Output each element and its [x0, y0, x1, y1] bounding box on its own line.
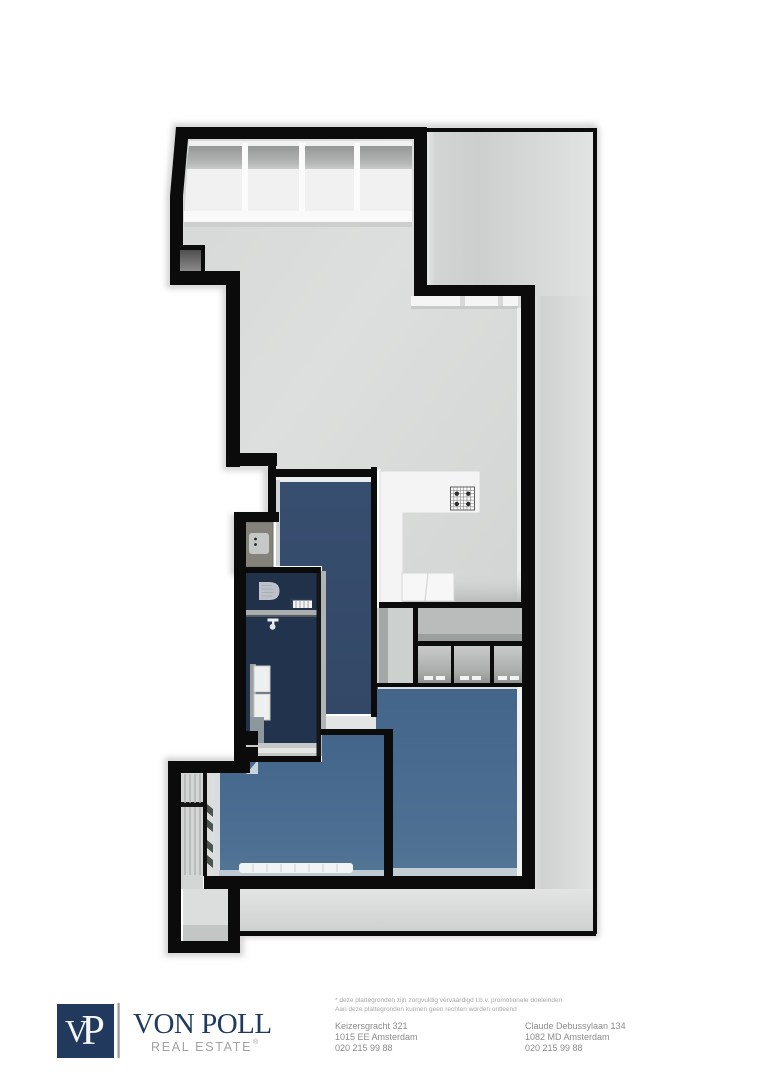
svg-text:Keizersgracht 321: Keizersgracht 321 — [335, 1021, 408, 1031]
svg-text:020 215 99 88: 020 215 99 88 — [335, 1043, 393, 1053]
svg-text:1082 MD Amsterdam: 1082 MD Amsterdam — [525, 1032, 610, 1042]
svg-text:Aan deze plattegronden kunnen: Aan deze plattegronden kunnen geen recht… — [335, 1006, 517, 1013]
svg-text:* deze plattegronden zijn zorg: * deze plattegronden zijn zorgvuldig ver… — [335, 997, 563, 1004]
svg-text:REAL ESTATE: REAL ESTATE — [151, 1040, 252, 1054]
svg-text:020 215 99 88: 020 215 99 88 — [525, 1043, 583, 1053]
svg-text:VON POLL: VON POLL — [133, 1008, 272, 1040]
svg-text:Claude Debussylaan 134: Claude Debussylaan 134 — [525, 1021, 626, 1031]
svg-text:®: ® — [253, 1038, 259, 1046]
svg-text:1015 EE Amsterdam: 1015 EE Amsterdam — [335, 1032, 418, 1042]
svg-text:P: P — [82, 1008, 105, 1054]
